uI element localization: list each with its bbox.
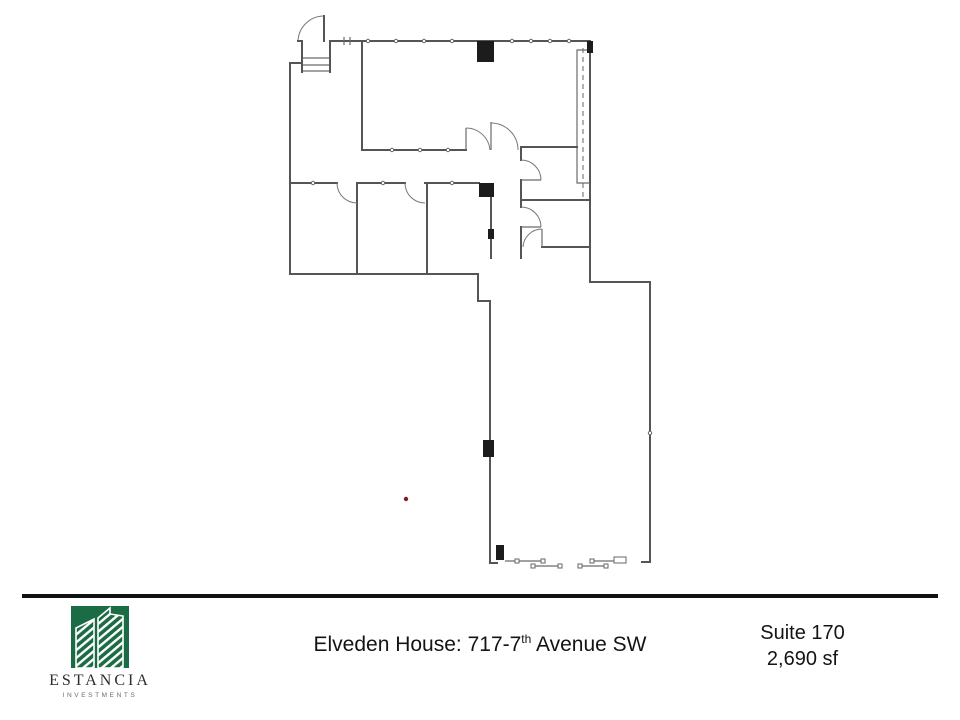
suite-info: Suite 170 2,690 sf (730, 620, 875, 673)
address-prefix: Elveden House: 717-7 (313, 633, 521, 656)
floorplan-door-swings (337, 122, 542, 247)
floorplan-area (0, 0, 960, 600)
flyer-page: ESTANCIA INVESTMENTS Elveden House: 717-… (0, 0, 960, 720)
footer: ESTANCIA INVESTMENTS Elveden House: 717-… (0, 598, 960, 720)
address-suffix: Avenue SW (531, 633, 646, 656)
floorplan-bottom-fixtures (505, 557, 626, 568)
floorplan-walls (290, 16, 650, 563)
brand-name: ESTANCIA (40, 672, 160, 690)
suite-area: 2,690 sf (730, 646, 875, 672)
floorplan-drawing (0, 0, 960, 600)
suite-number: Suite 170 (730, 620, 875, 646)
brand-tagline: INVESTMENTS (40, 692, 160, 699)
address-ordinal: th (521, 632, 531, 646)
floorplan-columns (477, 41, 593, 560)
red-marker-dot (404, 497, 408, 501)
